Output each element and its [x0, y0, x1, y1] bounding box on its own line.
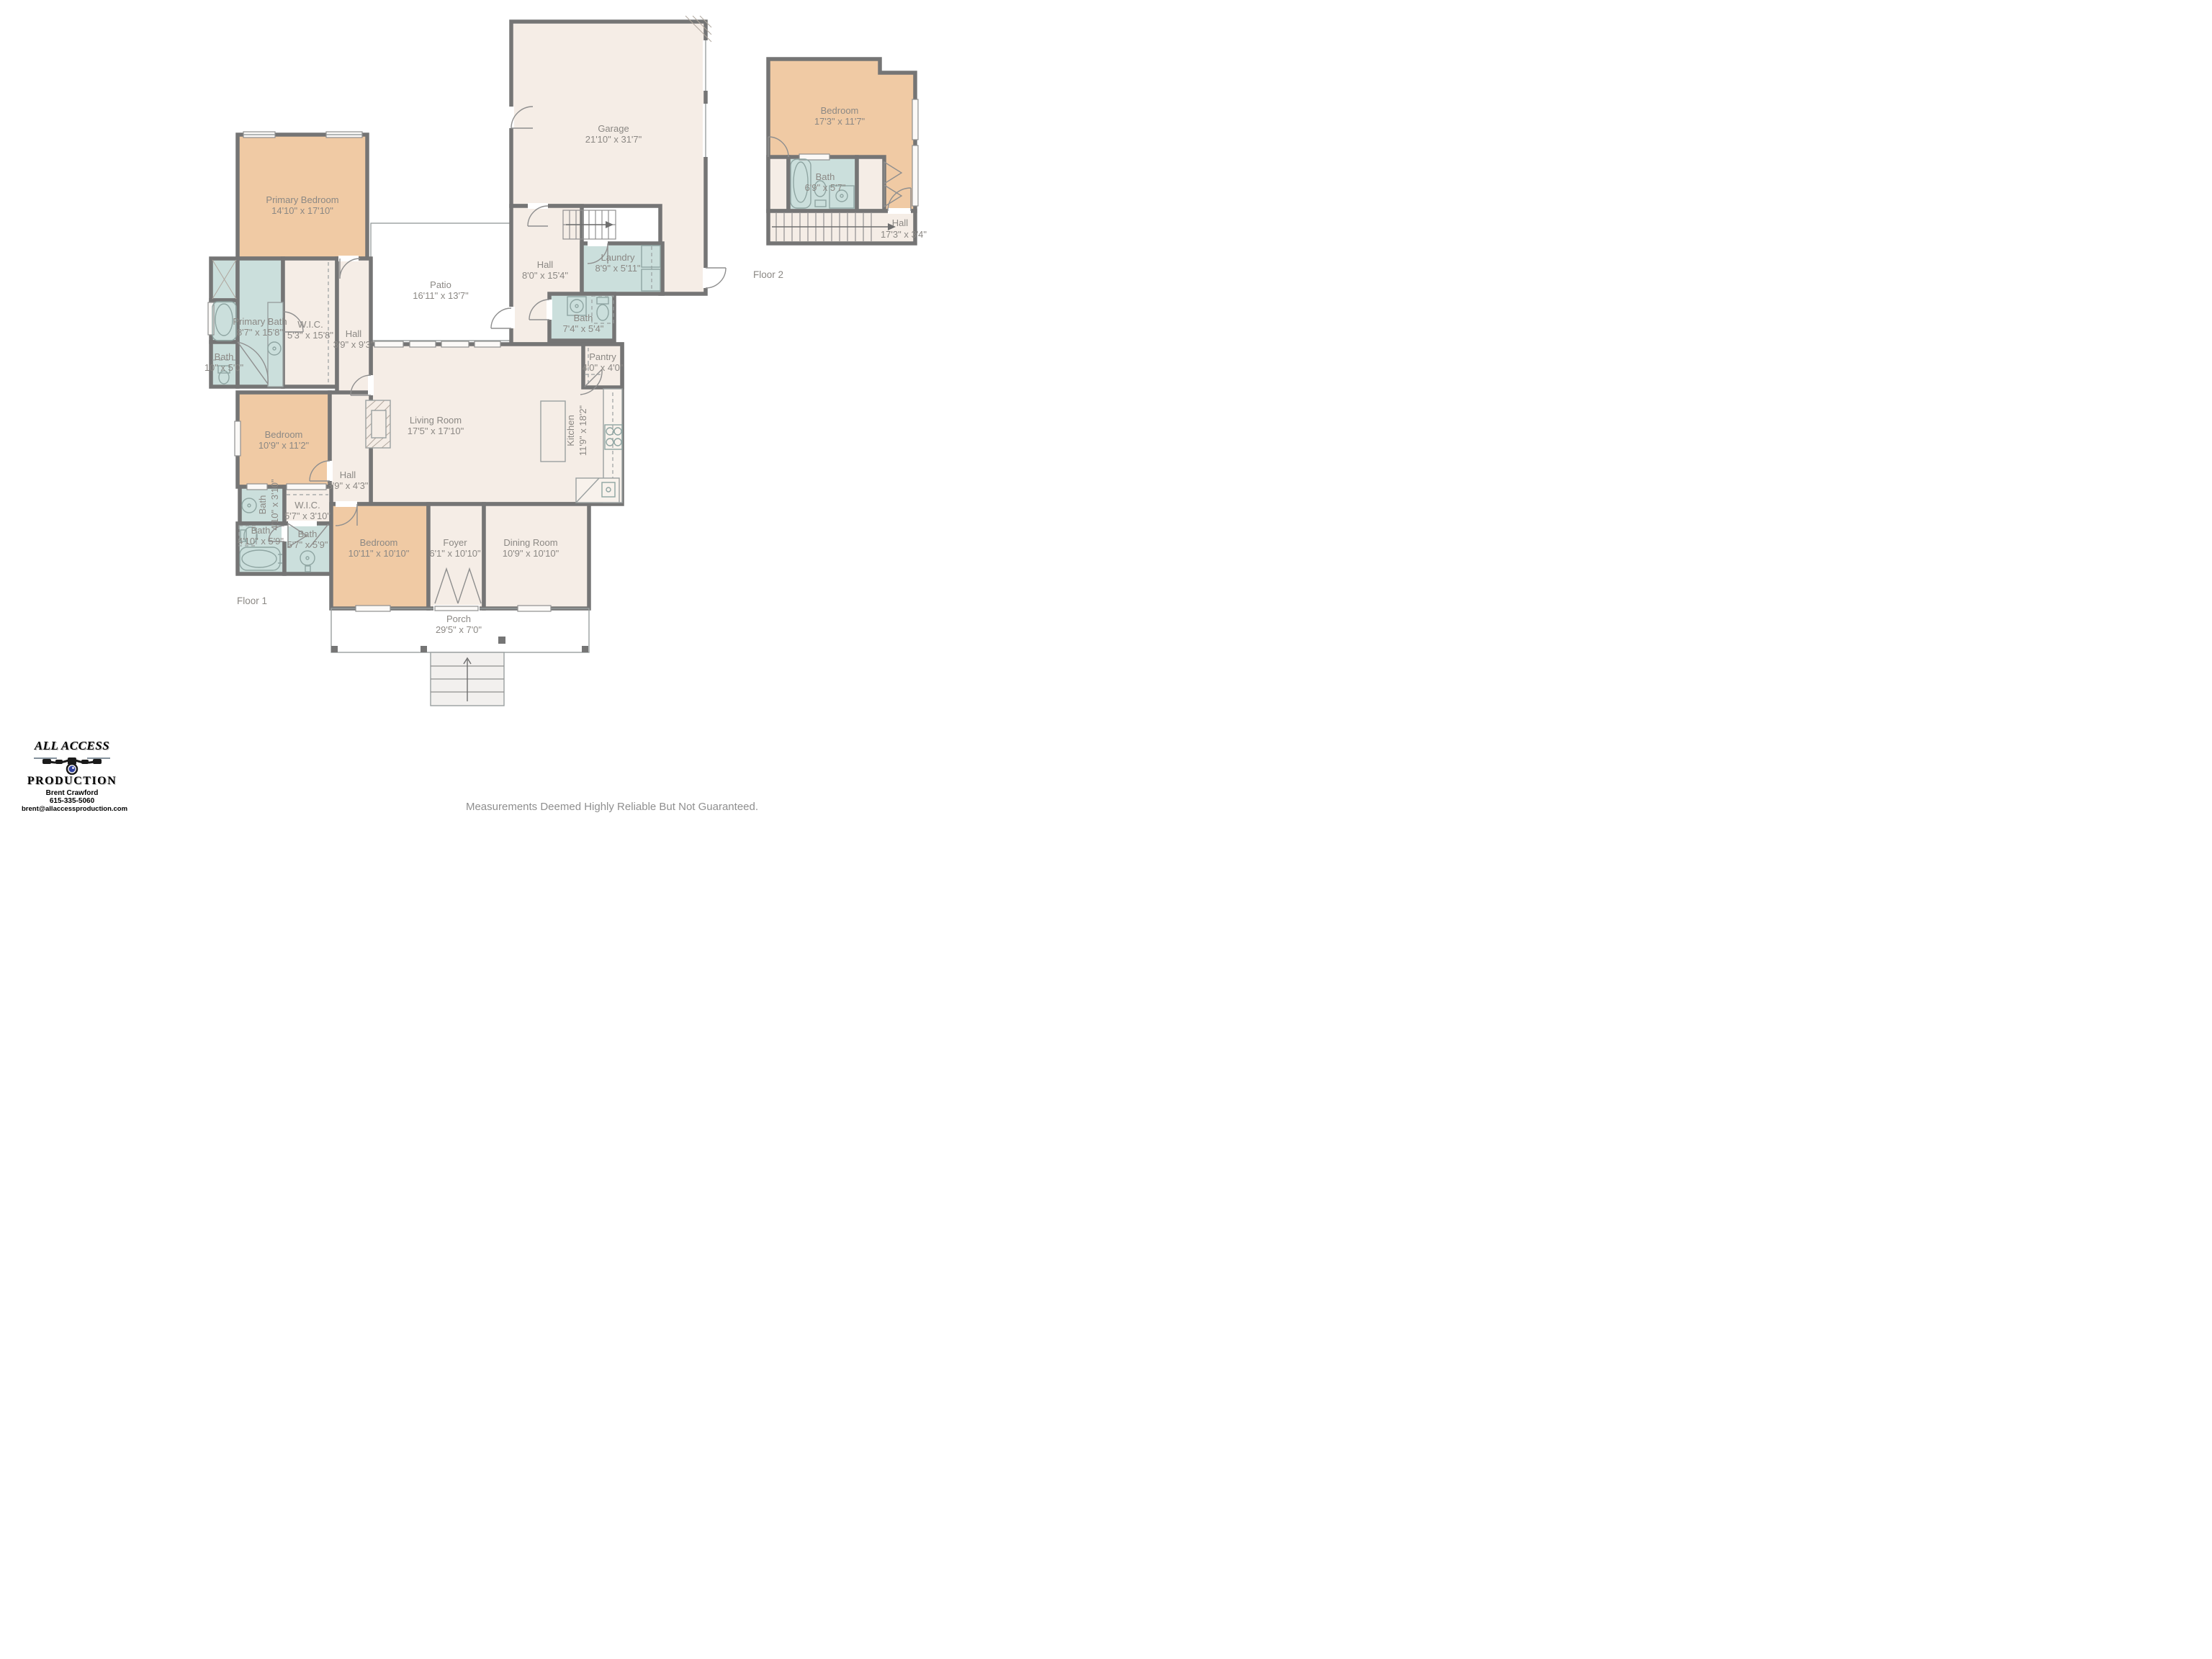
dining-room-label: Dining Room — [503, 537, 557, 548]
dining-room-dims: 10'9" x 10'10" — [503, 548, 559, 559]
floorplan-drawing: Primary Bedroom 14'10" x 17'10" Primary … — [0, 0, 1106, 829]
porch-posts — [331, 637, 588, 652]
bath-small-label: Bath — [215, 351, 234, 362]
bedroom-mid-dims: 10'9" x 11'2" — [258, 440, 310, 451]
logo-text-all-access: ALL ACCESS — [22, 739, 122, 753]
floorplan-page: Primary Bedroom 14'10" x 17'10" Primary … — [0, 0, 1106, 829]
bath-vert-dims: 4'10" x 3'10" — [269, 479, 280, 531]
bath-s-dims: 5'7" x 5'9" — [287, 539, 328, 550]
floor2-hall-label: Hall — [892, 217, 909, 228]
hall-west-dims: 3'9" x 9'3" — [333, 339, 374, 350]
contact-phone: 615-335-5060 — [22, 797, 122, 805]
hall-center-label: Hall — [537, 259, 554, 270]
kitchen-label: Kitchen — [565, 415, 576, 446]
pantry-label: Pantry — [589, 351, 616, 362]
floor2-bath-label: Bath — [816, 171, 835, 182]
garage-dims: 21'10" x 31'7" — [585, 134, 642, 145]
hall-center-dims: 8'0" x 15'4" — [522, 270, 568, 281]
floor1-tag: Floor 1 — [237, 595, 267, 606]
bath-s-label: Bath — [298, 529, 318, 539]
primary-bedroom-label: Primary Bedroom — [266, 194, 338, 205]
kitchen-island — [541, 401, 565, 462]
primary-bath-dims: 8'7" x 15'8" — [237, 327, 283, 338]
living-room-label: Living Room — [410, 415, 462, 426]
bath-sw-label: Bath — [251, 525, 271, 536]
contact-name: Brent Crawford — [22, 789, 122, 797]
laundry-label: Laundry — [601, 252, 635, 263]
garage-label: Garage — [598, 123, 629, 134]
foyer-label: Foyer — [443, 537, 467, 548]
hall-west-label: Hall — [346, 328, 362, 339]
floor2-bedroom-dims: 17'3" x 11'7" — [814, 116, 866, 127]
wic-main-label: W.I.C. — [297, 319, 323, 330]
hall-small-dims: 3'9" x 4'3" — [328, 480, 369, 491]
floor2-bedroom-label: Bedroom — [821, 105, 859, 116]
bedroom-s-dims: 10'11" x 10'10" — [349, 548, 410, 559]
floor2-closet — [857, 157, 884, 211]
bath-center-label: Bath — [574, 313, 593, 323]
floor2-tag: Floor 2 — [753, 269, 783, 280]
wic-main-dims: 5'3" x 15'8" — [287, 330, 333, 341]
wic-small-dims: 5'7" x 3'10" — [284, 511, 331, 521]
floor2-plan: Bedroom 17'3" x 11'7" Bath 6'9" x 5'7" H… — [753, 59, 927, 280]
wic-small-label: W.I.C. — [295, 500, 320, 511]
bath-center-dims: 7'4" x 5'4" — [563, 323, 604, 334]
bath-small-dims: 10" x 5'0" — [204, 362, 244, 373]
fireplace — [366, 400, 390, 448]
primary-bath-label: Primary Bath — [233, 316, 287, 327]
laundry-dims: 8'9" x 5'11" — [595, 263, 640, 274]
logo-text-production: PRODUCTION — [22, 775, 122, 788]
porch-label: Porch — [446, 613, 471, 624]
primary-bedroom-dims: 14'10" x 17'10" — [271, 205, 333, 216]
floor2-hall-dims: 17'3" x 3'4" — [881, 229, 927, 240]
floor2-bath-dims: 6'9" x 5'7" — [805, 182, 846, 193]
bath-sw-dims: 4'10" x 5'9" — [238, 536, 284, 547]
bedroom-s-label: Bedroom — [360, 537, 398, 548]
living-room-dims: 17'5" x 17'10" — [408, 426, 464, 436]
disclaimer-text: Measurements Deemed Highly Reliable But … — [425, 801, 799, 813]
foyer-dims: 6'1" x 10'10" — [429, 548, 481, 559]
company-logo: ALL ACCESS PRODUCTION Brent Crawford 615… — [22, 739, 122, 813]
patio-dims: 16'11" x 13'7" — [413, 290, 469, 301]
drone-icon — [32, 753, 112, 775]
bedroom-mid-label: Bedroom — [265, 429, 303, 440]
patio-label: Patio — [430, 279, 451, 290]
floor2-landing — [768, 157, 788, 211]
floor1-plan: Primary Bedroom 14'10" x 17'10" Primary … — [204, 16, 726, 706]
contact-email: brent@allaccessproduction.com — [22, 805, 122, 813]
bath-vert-label: Bath — [257, 495, 268, 515]
hall-small-label: Hall — [340, 469, 356, 480]
porch-dims: 29'5" x 7'0" — [436, 624, 482, 635]
pantry-dims: 4'0" x 4'0" — [583, 362, 624, 373]
kitchen-dims: 11'9" x 18'2" — [577, 405, 588, 456]
